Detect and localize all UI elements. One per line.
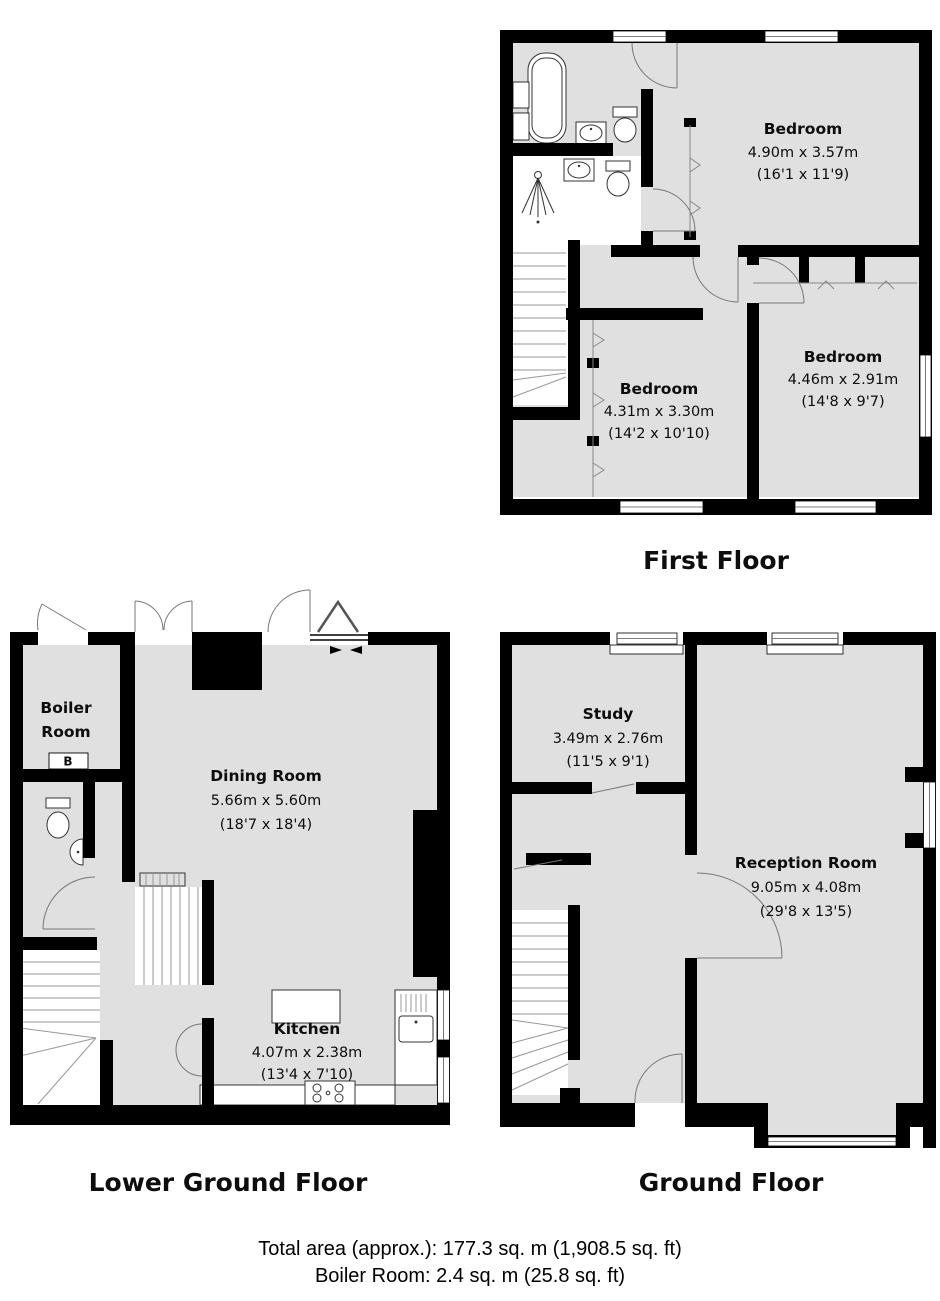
room-name: Bedroom — [620, 380, 699, 398]
bathroom-sink-icon — [576, 122, 606, 145]
ground-floor-plan: Study 3.49m x 2.76m (11'5 x 9'1) Recepti… — [496, 588, 940, 1168]
room-label-bedroom-3: Bedroom 4.46m x 2.91m (14'8 x 9'7) — [788, 348, 899, 410]
room-dims-ft: (14'8 x 9'7) — [801, 394, 884, 410]
room-dims-m: 3.49m x 2.76m — [553, 731, 664, 747]
first-floor-title: First Floor — [643, 546, 789, 575]
room-label-bedroom-1: Bedroom 4.90m x 3.57m (16'1 x 11'9) — [748, 120, 859, 183]
toilet-icon — [613, 107, 637, 142]
room-name: Bedroom — [764, 120, 843, 138]
room-label-bedroom-2: Bedroom 4.31m x 3.30m (14'2 x 10'10) — [604, 380, 715, 442]
lower-ground-floor-title: Lower Ground Floor — [89, 1168, 368, 1197]
room-name: Kitchen — [274, 1020, 341, 1038]
room-name: Dining Room — [210, 767, 321, 785]
room-dims-m: 4.90m x 3.57m — [748, 145, 859, 161]
floorplan-page: Bedroom 4.90m x 3.57m (16'1 x 11'9) Bedr… — [0, 0, 940, 1301]
room-dims-m: 4.31m x 3.30m — [604, 404, 715, 420]
shower-sink-icon — [564, 159, 594, 181]
floor-areas — [512, 645, 923, 1137]
ground-floor-title: Ground Floor — [639, 1168, 824, 1197]
room-name: Boiler — [40, 699, 92, 717]
room-label-dining-room: Dining Room 5.66m x 5.60m (18'7 x 18'4) — [210, 767, 321, 833]
room-dims-m: 4.07m x 2.38m — [252, 1045, 363, 1061]
lower-ground-floor-plan: B Boiler Room Dining Room 5.66m x 5.60m … — [8, 588, 452, 1168]
room-name: Bedroom — [804, 348, 883, 366]
room-dims-m: 4.46m x 2.91m — [788, 372, 899, 388]
room-dims-ft: (16'1 x 11'9) — [757, 167, 849, 183]
boiler-marker: B — [49, 753, 88, 769]
boiler-area-line: Boiler Room: 2.4 sq. m (25.8 sq. ft) — [0, 1263, 940, 1290]
stove-icon — [305, 1081, 355, 1105]
total-area-line: Total area (approx.): 177.3 sq. m (1,908… — [0, 1236, 940, 1263]
room-dims-ft: (29'8 x 13'5) — [760, 904, 852, 920]
bathtub-icon — [528, 53, 566, 143]
toilet-icon — [46, 798, 70, 838]
room-dims-ft: (11'5 x 9'1) — [566, 754, 649, 770]
total-area-footer: Total area (approx.): 177.3 sq. m (1,908… — [0, 1236, 940, 1290]
room-name: Study — [583, 705, 634, 723]
room-dims-m: 9.05m x 4.08m — [751, 880, 862, 896]
room-name: Room — [41, 723, 90, 741]
room-dims-ft: (18'7 x 18'4) — [220, 817, 312, 833]
room-dims-ft: (14'2 x 10'10) — [608, 426, 710, 442]
first-floor-plan: Bedroom 4.90m x 3.57m (16'1 x 11'9) Bedr… — [498, 25, 934, 525]
room-dims-ft: (13'4 x 7'10) — [261, 1067, 353, 1083]
toilet-icon — [606, 161, 630, 196]
room-name: Reception Room — [735, 854, 877, 872]
room-dims-m: 5.66m x 5.60m — [211, 793, 322, 809]
boiler-marker-label: B — [63, 755, 72, 769]
